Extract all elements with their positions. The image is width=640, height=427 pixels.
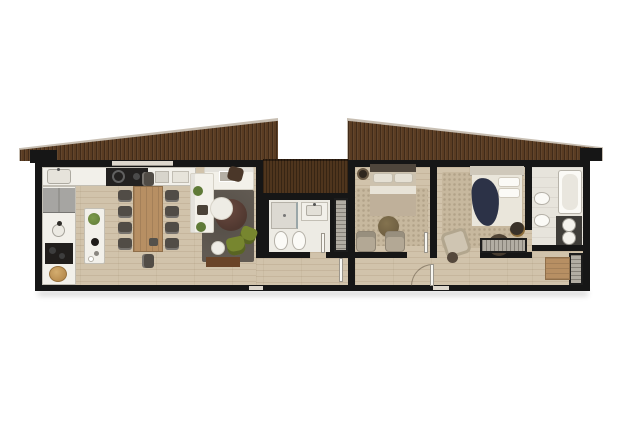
dining-table (133, 186, 163, 252)
hall-door-leaf (339, 258, 343, 282)
entrance-door-leaf (430, 264, 434, 286)
dining-chair (165, 190, 179, 202)
dining-table-decor (149, 238, 158, 246)
middle-bedroom-armchair-2 (385, 231, 405, 252)
kitchen-sink (47, 169, 71, 184)
middle-bed-blanket (370, 194, 416, 216)
middle-bedroom-armchair-1 (356, 231, 376, 252)
white-pouf (211, 241, 225, 255)
kitchen-faucet (57, 168, 60, 171)
guest-vanity-faucet (313, 203, 316, 206)
guest-vanity-basin (306, 205, 322, 216)
window-top-left (112, 161, 173, 166)
entrance-door-gap (433, 286, 449, 290)
wall-master-bathroom (525, 167, 532, 230)
sofa-plant-1 (193, 186, 203, 196)
guest-toilet (274, 231, 288, 250)
hallway-floor-central (263, 258, 348, 285)
middle-bed-pillow-1 (373, 173, 393, 183)
counter-small-appliance (155, 171, 169, 183)
bread-basket (49, 266, 67, 282)
master-bed-pillow-2 (498, 188, 520, 198)
passage-living-to-hall (256, 258, 263, 285)
sofa-plant-2 (196, 222, 206, 232)
dining-chair-head (142, 172, 154, 186)
dining-chair (165, 238, 179, 250)
wall-mid-master (430, 167, 437, 258)
sofa-tray (197, 205, 208, 215)
dining-chair (118, 222, 132, 234)
island-small-cup (88, 256, 94, 262)
middle-bed-sheet-fold (370, 186, 416, 194)
dining-chair (165, 206, 179, 218)
kitchen-round-sink-faucet (57, 221, 62, 226)
middle-bed-pillow-2 (394, 173, 413, 183)
hall-wall-right-1 (355, 252, 407, 258)
roof-right (348, 120, 602, 161)
cooktop-burner-large (112, 170, 125, 183)
closet-wardrobe (569, 253, 583, 285)
central-wardrobe (334, 198, 348, 252)
closet-dresser (545, 257, 570, 280)
dining-chair (165, 222, 179, 234)
dark-hob-burner-2 (59, 253, 65, 259)
floor-plan-canvas (0, 0, 640, 427)
cooktop-burner-small (133, 173, 140, 180)
roof-left (20, 120, 278, 161)
dining-chair (118, 206, 132, 218)
guest-bathroom-door-leaf (321, 233, 325, 253)
shower-drain (283, 214, 286, 217)
master-bedroom-wardrobe (480, 238, 527, 253)
building-ground-shadow (38, 291, 588, 296)
dining-chair (118, 238, 132, 250)
dining-chair-foot (142, 254, 154, 268)
round-basin-1 (562, 218, 576, 232)
counter-tray (172, 171, 189, 183)
coffee-table-white (210, 197, 233, 220)
dark-hob-burner-1 (49, 247, 56, 254)
master-toilet (534, 192, 550, 205)
brass-table (510, 222, 525, 237)
middle-bedroom-door-leaf (424, 232, 428, 253)
bathtub-basin (562, 174, 578, 210)
wood-stove (357, 168, 369, 180)
guest-bidet (292, 231, 306, 250)
island-plant (88, 213, 100, 225)
island-dark-bowl (91, 238, 99, 246)
media-console (206, 257, 240, 267)
master-bed-pillow-1 (498, 177, 520, 187)
master-bidet (534, 214, 550, 227)
master-side-table (447, 252, 458, 263)
middle-bed-headboard (370, 164, 416, 172)
refrigerator (43, 188, 75, 213)
island-small-dish (94, 251, 99, 256)
dining-chair (118, 190, 132, 202)
round-basin-2 (562, 231, 576, 245)
